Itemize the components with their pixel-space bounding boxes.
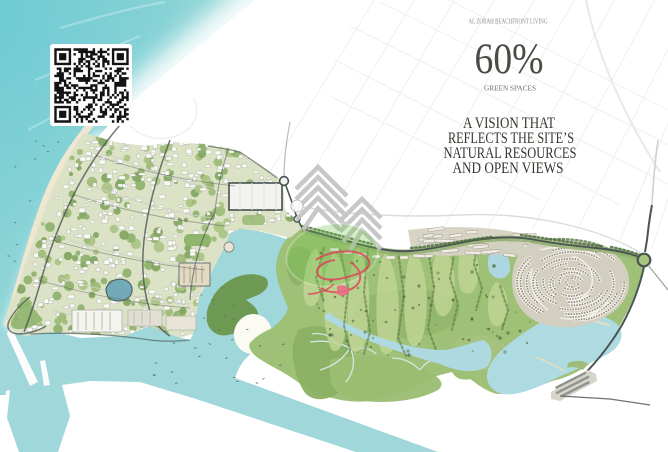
svg-text:60%: 60% (475, 36, 544, 83)
svg-text:AND OPEN VIEWS: AND OPEN VIEWS (453, 160, 564, 177)
svg-text:AL ZORAH BEACHFRONT LIVING: AL ZORAH BEACHFRONT LIVING (469, 18, 548, 26)
svg-text:GREEN SPACES: GREEN SPACES (484, 84, 536, 93)
